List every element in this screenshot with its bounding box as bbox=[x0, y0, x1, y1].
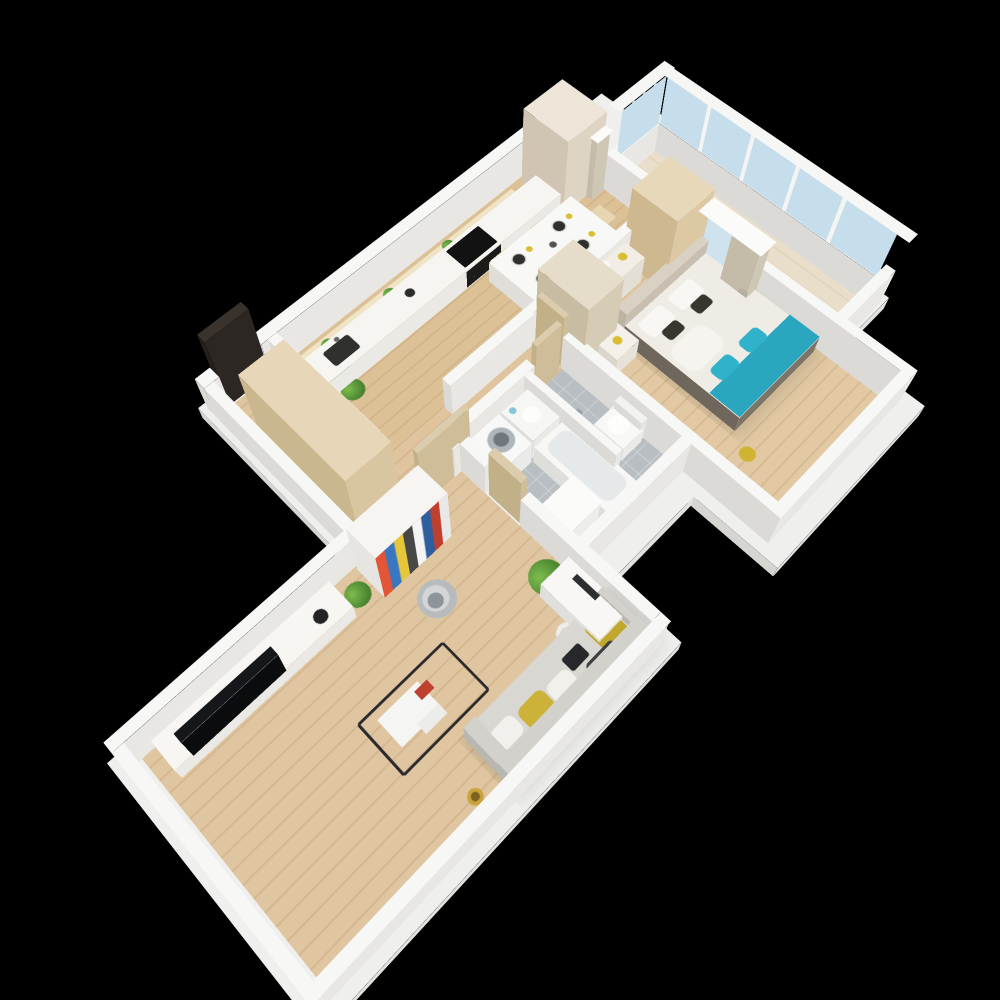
floorplan-scene bbox=[0, 0, 1000, 1000]
